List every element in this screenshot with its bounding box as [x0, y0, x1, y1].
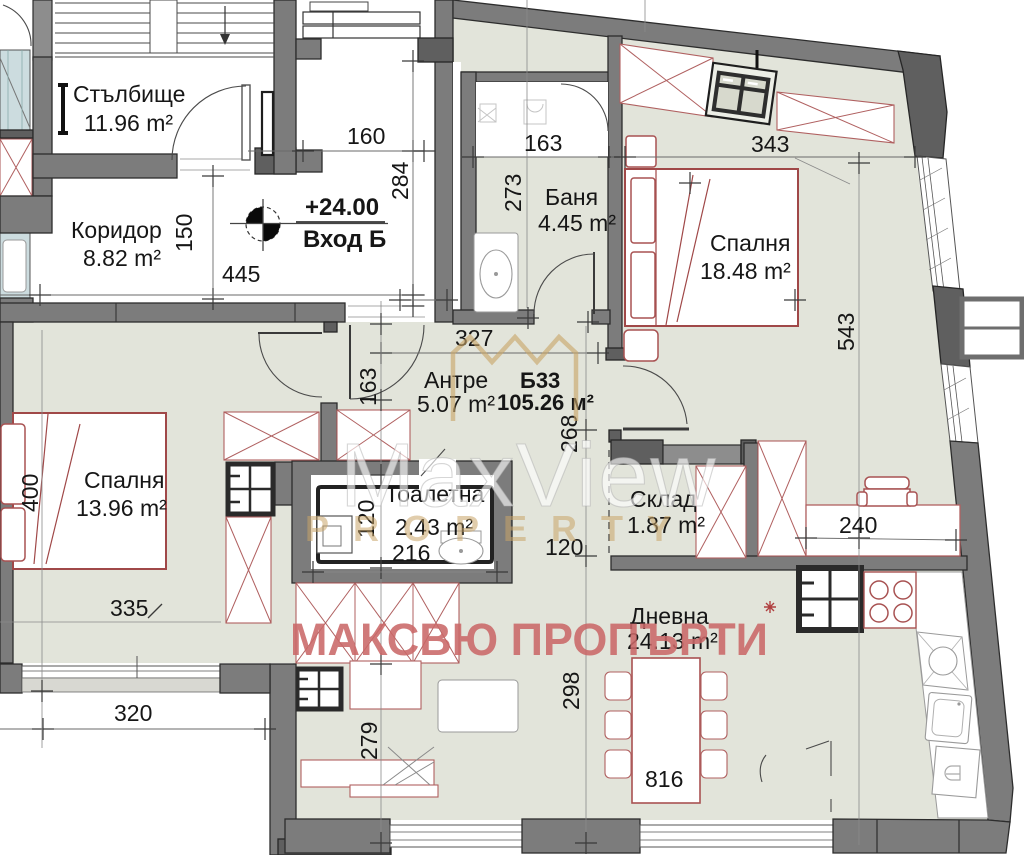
- svg-text:284: 284: [387, 161, 413, 200]
- svg-text:273: 273: [500, 174, 526, 212]
- svg-text:105.26 м²: 105.26 м²: [497, 390, 594, 415]
- svg-text:343: 343: [751, 131, 789, 157]
- svg-text:+24.00: +24.00: [305, 194, 379, 221]
- svg-text:150: 150: [171, 214, 197, 252]
- svg-text:Спалня: Спалня: [84, 467, 164, 493]
- svg-text:Коридор: Коридор: [71, 217, 162, 243]
- svg-text:543: 543: [833, 313, 859, 351]
- svg-text:13.96 m²: 13.96 m²: [76, 495, 167, 521]
- svg-text:Антре: Антре: [424, 367, 488, 393]
- svg-text:4.45 m²: 4.45 m²: [538, 210, 616, 236]
- svg-text:335: 335: [110, 595, 148, 621]
- svg-text:Спалня: Спалня: [710, 230, 790, 256]
- svg-text:Баня: Баня: [545, 184, 598, 210]
- svg-text:Стълбище: Стълбище: [73, 81, 185, 107]
- svg-text:279: 279: [356, 722, 382, 760]
- svg-text:163: 163: [524, 130, 562, 156]
- svg-text:Вход Б: Вход Б: [303, 226, 386, 253]
- svg-text:МАКСВЮ ПРОПЪРТИ: МАКСВЮ ПРОПЪРТИ: [290, 614, 768, 665]
- svg-text:445: 445: [222, 261, 260, 287]
- svg-text:163: 163: [355, 368, 381, 406]
- svg-text:816: 816: [645, 766, 683, 792]
- svg-text:298: 298: [558, 672, 584, 710]
- svg-text:160: 160: [347, 123, 385, 149]
- svg-text:5.07 m²: 5.07 m²: [417, 391, 495, 417]
- svg-text:400: 400: [17, 474, 43, 512]
- svg-text:240: 240: [839, 512, 877, 538]
- svg-text:11.96 m²: 11.96 m²: [84, 110, 173, 136]
- svg-text:18.48 m²: 18.48 m²: [700, 258, 791, 284]
- svg-text:8.82 m²: 8.82 m²: [83, 245, 161, 271]
- svg-text:PROPERTY: PROPERTY: [305, 508, 695, 549]
- svg-text:320: 320: [114, 700, 152, 726]
